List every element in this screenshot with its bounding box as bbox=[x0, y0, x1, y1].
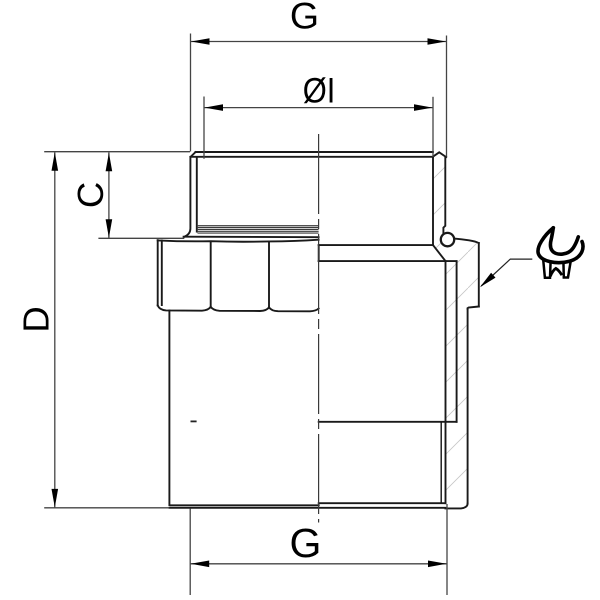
svg-text:C: C bbox=[70, 182, 111, 208]
svg-text:ØI: ØI bbox=[303, 72, 336, 111]
svg-text:G: G bbox=[290, 520, 322, 566]
svg-text:G: G bbox=[290, 0, 319, 37]
svg-text:D: D bbox=[16, 306, 57, 332]
